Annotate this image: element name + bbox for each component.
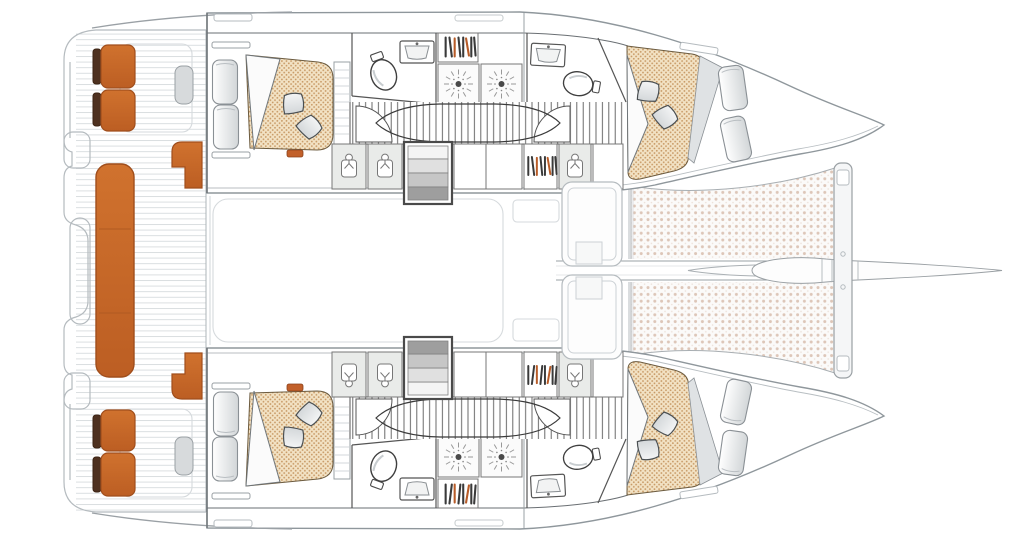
transom-bench bbox=[96, 164, 134, 377]
side-seat-cushion bbox=[101, 453, 135, 496]
side-seat-cushion bbox=[101, 45, 135, 88]
floorplan-svg bbox=[0, 0, 1024, 541]
bowsprit bbox=[752, 258, 1002, 284]
side-seat-cushion bbox=[101, 90, 135, 131]
backrest bbox=[93, 457, 101, 492]
backrest bbox=[93, 49, 101, 84]
backrest bbox=[93, 93, 101, 126]
side-seat-cushion bbox=[101, 410, 135, 451]
backrest bbox=[93, 415, 101, 448]
helm-pod bbox=[175, 66, 193, 104]
helm-pod bbox=[175, 437, 193, 475]
catamaran-floorplan bbox=[0, 0, 1024, 541]
forward-crossbeam bbox=[834, 163, 852, 378]
